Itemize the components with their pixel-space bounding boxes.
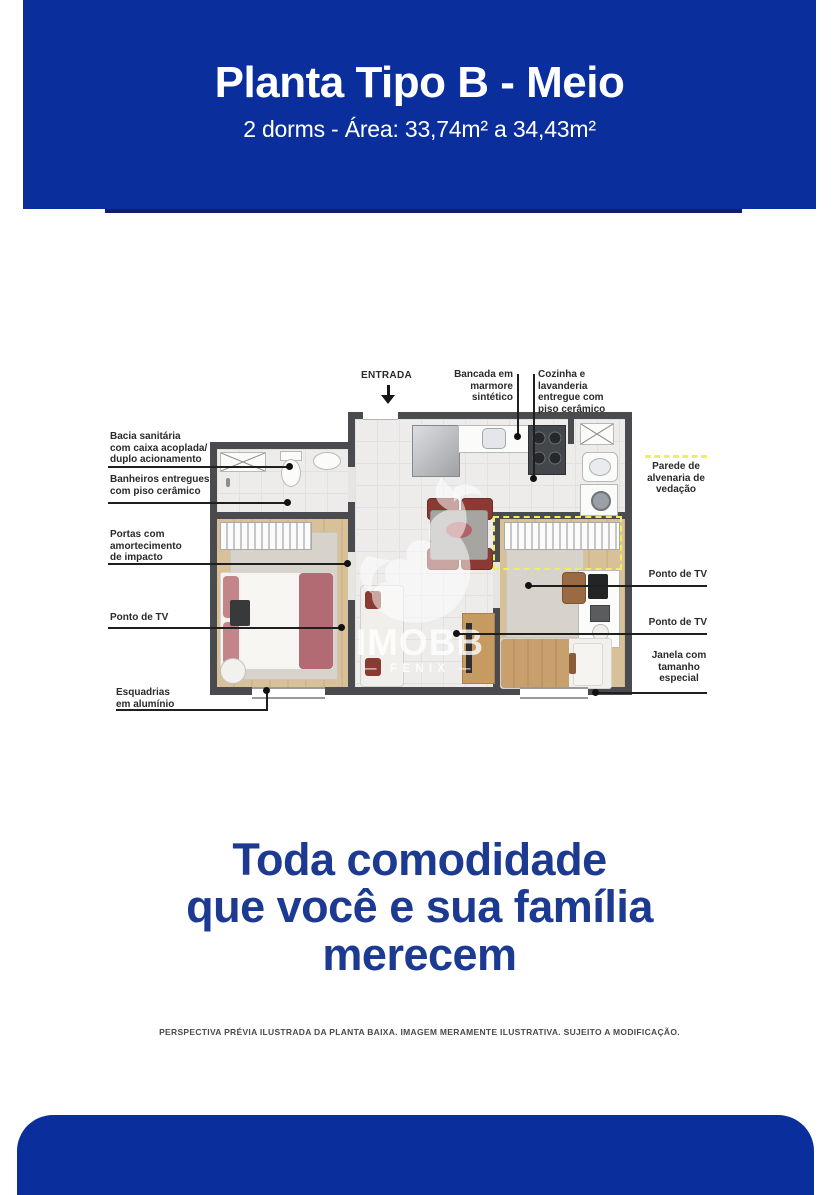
entry-door-opening — [363, 412, 398, 420]
callout-window-frames: Esquadrias em alumínio — [116, 687, 216, 710]
callout-special-window: Janela com tamanho especial — [648, 650, 710, 685]
tv-icon — [230, 600, 250, 626]
wall-bathroom-top — [210, 442, 355, 449]
wall-bathroom-bottom — [217, 512, 355, 519]
callout-tv-point-right1: Ponto de TV — [620, 569, 707, 581]
wardrobe-icon — [220, 522, 312, 550]
watermark-tagline: — FENIX — — [340, 661, 500, 675]
wall-right — [625, 412, 632, 695]
callout-tv-point-right2: Ponto de TV — [620, 617, 707, 629]
bedroom2-window — [520, 687, 588, 699]
callout-masonry-wall: Parede de alvenaria de vedação — [633, 461, 719, 496]
masonry-wall-highlight — [493, 516, 622, 570]
watermark-brand: IMOBB — [340, 622, 500, 664]
floor-plan: IMOBB — FENIX — — [210, 412, 632, 695]
wall-laundry-stub — [568, 419, 574, 444]
header-band: Planta Tipo B - Meio 2 dorms - Área: 33,… — [23, 0, 816, 209]
callout-toilet: Bacia sanitária com caixa acoplada/ dupl… — [110, 431, 220, 466]
headline-line-3: merecem — [0, 931, 839, 978]
callout-tv-point-left: Ponto de TV — [110, 612, 220, 624]
shelf-box-icon — [590, 605, 610, 622]
watermark-logo — [338, 468, 508, 638]
side-table-icon — [220, 658, 246, 684]
entrance-arrowhead-icon — [381, 395, 395, 404]
headline-line-1: Toda comodidade — [0, 836, 839, 883]
masonry-dash-icon — [645, 455, 707, 458]
single-bed-icon — [500, 638, 612, 689]
kitchen-sink-icon — [482, 428, 506, 449]
callout-doors: Portas com amortecimento de impacto — [110, 529, 220, 564]
sink-icon — [313, 452, 341, 470]
footer-band — [17, 1115, 814, 1195]
shower-box-icon — [220, 452, 266, 472]
callout-kitchen-laundry: Cozinha e lavanderia entregue com piso c… — [538, 369, 618, 415]
callout-entrance: ENTRADA — [361, 370, 412, 382]
wall-hall-a — [348, 412, 355, 467]
disclaimer-text: PERSPECTIVA PRÉVIA ILUSTRADA DA PLANTA B… — [0, 1027, 839, 1037]
desk-chair-icon — [562, 572, 586, 604]
headline-line-2: que você e sua família — [0, 883, 839, 930]
upper-cabinet-icon — [580, 423, 614, 445]
callout-countertop: Bancada em marmore sintético — [440, 369, 513, 404]
page-subtitle: 2 dorms - Área: 33,74m² a 34,43m² — [23, 116, 816, 143]
headline: Toda comodidade que você e sua família m… — [0, 836, 839, 978]
page-title: Planta Tipo B - Meio — [23, 58, 816, 108]
laundry-tub-icon — [582, 452, 618, 482]
towel-hook-icon — [226, 478, 230, 487]
phoenix-icon — [338, 468, 508, 638]
washing-machine-icon — [580, 484, 618, 516]
callout-bathrooms: Banheiros entregues com piso cerâmico — [110, 474, 220, 497]
